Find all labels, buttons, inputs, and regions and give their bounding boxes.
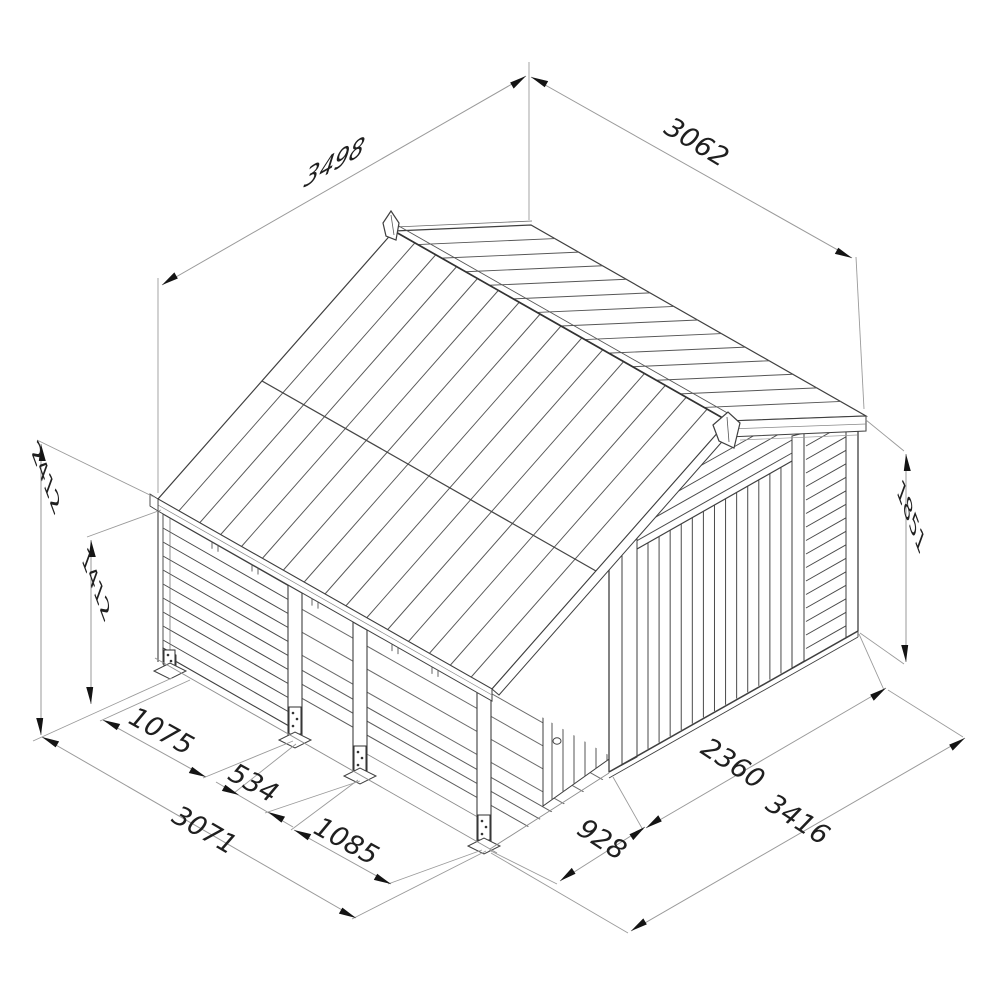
dimension-arrowhead — [646, 815, 662, 828]
dimension-534: 534 — [216, 744, 360, 827]
dimension-label-3416: 3416 — [760, 788, 835, 851]
isometric-shed-dimension-drawing: 3498306224121412185110755343071108592823… — [0, 0, 1000, 1000]
bracket-bolt-hole — [296, 718, 299, 721]
dimension-arrowhead — [901, 645, 908, 662]
bracket-bolt-hole — [357, 764, 360, 767]
floor-bearer-end — [553, 738, 561, 744]
post-anchor-bracket — [354, 746, 366, 771]
bracket-bolt-hole — [170, 660, 173, 663]
bracket-bolt-hole — [481, 820, 484, 823]
post-base-plate — [279, 732, 311, 748]
interior-floor-line — [300, 716, 490, 824]
dimension-label-2360: 2360 — [695, 732, 770, 795]
bracket-bolt-hole — [485, 826, 488, 829]
dimension-1085: 1085 — [291, 780, 482, 884]
post-anchor-bracket — [289, 707, 301, 734]
dimension-arrowhead — [189, 767, 206, 777]
extension-line — [388, 850, 482, 884]
bracket-bolt-hole — [361, 757, 364, 760]
dimension-arrowhead — [949, 738, 965, 751]
dimension-928: 928 — [489, 777, 645, 884]
extension-line — [613, 777, 643, 830]
dimension-arrowhead — [510, 76, 526, 89]
dimension-label-1412: 1412 — [80, 538, 111, 633]
door-frame-trim — [622, 524, 637, 765]
dimension-arrowhead — [835, 248, 852, 258]
dimension-arrowhead — [162, 272, 178, 285]
extension-line — [860, 633, 904, 664]
bracket-bolt-hole — [292, 712, 295, 715]
dimension-arrowhead — [870, 688, 886, 701]
bracket-bolt-hole — [167, 654, 170, 657]
corner-trim — [609, 541, 622, 772]
extension-line — [87, 510, 161, 537]
post-anchor-bracket — [478, 815, 490, 840]
page: 3498306224121412185110755343071108592823… — [0, 0, 1000, 1000]
dimension-arrowhead — [36, 718, 43, 735]
dimension-1412: 1412 — [80, 510, 161, 704]
dimension-label-3062: 3062 — [659, 112, 734, 174]
dimension-arrowhead — [86, 687, 93, 704]
dimension-3416: 3416 — [491, 690, 965, 933]
door-frame-trim — [792, 433, 804, 668]
dimension-label-2412: 2412 — [30, 431, 61, 526]
dimension-arrowhead — [631, 918, 647, 931]
extension-line — [491, 853, 628, 933]
bracket-bolt-hole — [292, 725, 295, 728]
bracket-bolt-hole — [357, 751, 360, 754]
dimension-1851: 1851 — [860, 420, 926, 664]
extension-line — [859, 634, 884, 690]
dimension-arrowhead — [103, 720, 120, 730]
dimension-arrowhead — [374, 874, 391, 884]
extension-line — [489, 850, 557, 884]
dimension-label-928: 928 — [572, 813, 632, 867]
corner-trim — [846, 431, 858, 638]
dimension-label-1085: 1085 — [309, 811, 384, 871]
extension-line — [888, 690, 963, 737]
dimension-arrowhead — [904, 454, 911, 471]
dimension-arrowhead — [560, 868, 576, 881]
dimension-label-534: 534 — [223, 758, 283, 810]
post-base-plate — [154, 663, 186, 679]
dimension-arrowhead — [629, 827, 645, 840]
dimension-label-3498: 3498 — [302, 131, 367, 195]
dimension-line — [531, 77, 852, 258]
building-illustration — [150, 211, 866, 854]
dimension-label-1851: 1851 — [895, 470, 926, 565]
extension-line — [866, 420, 904, 451]
dimension-arrowhead — [294, 830, 311, 840]
dimension-label-3071: 3071 — [167, 800, 242, 861]
bracket-bolt-hole — [481, 833, 484, 836]
extension-line — [856, 257, 864, 409]
dimension-arrowhead — [531, 77, 548, 87]
